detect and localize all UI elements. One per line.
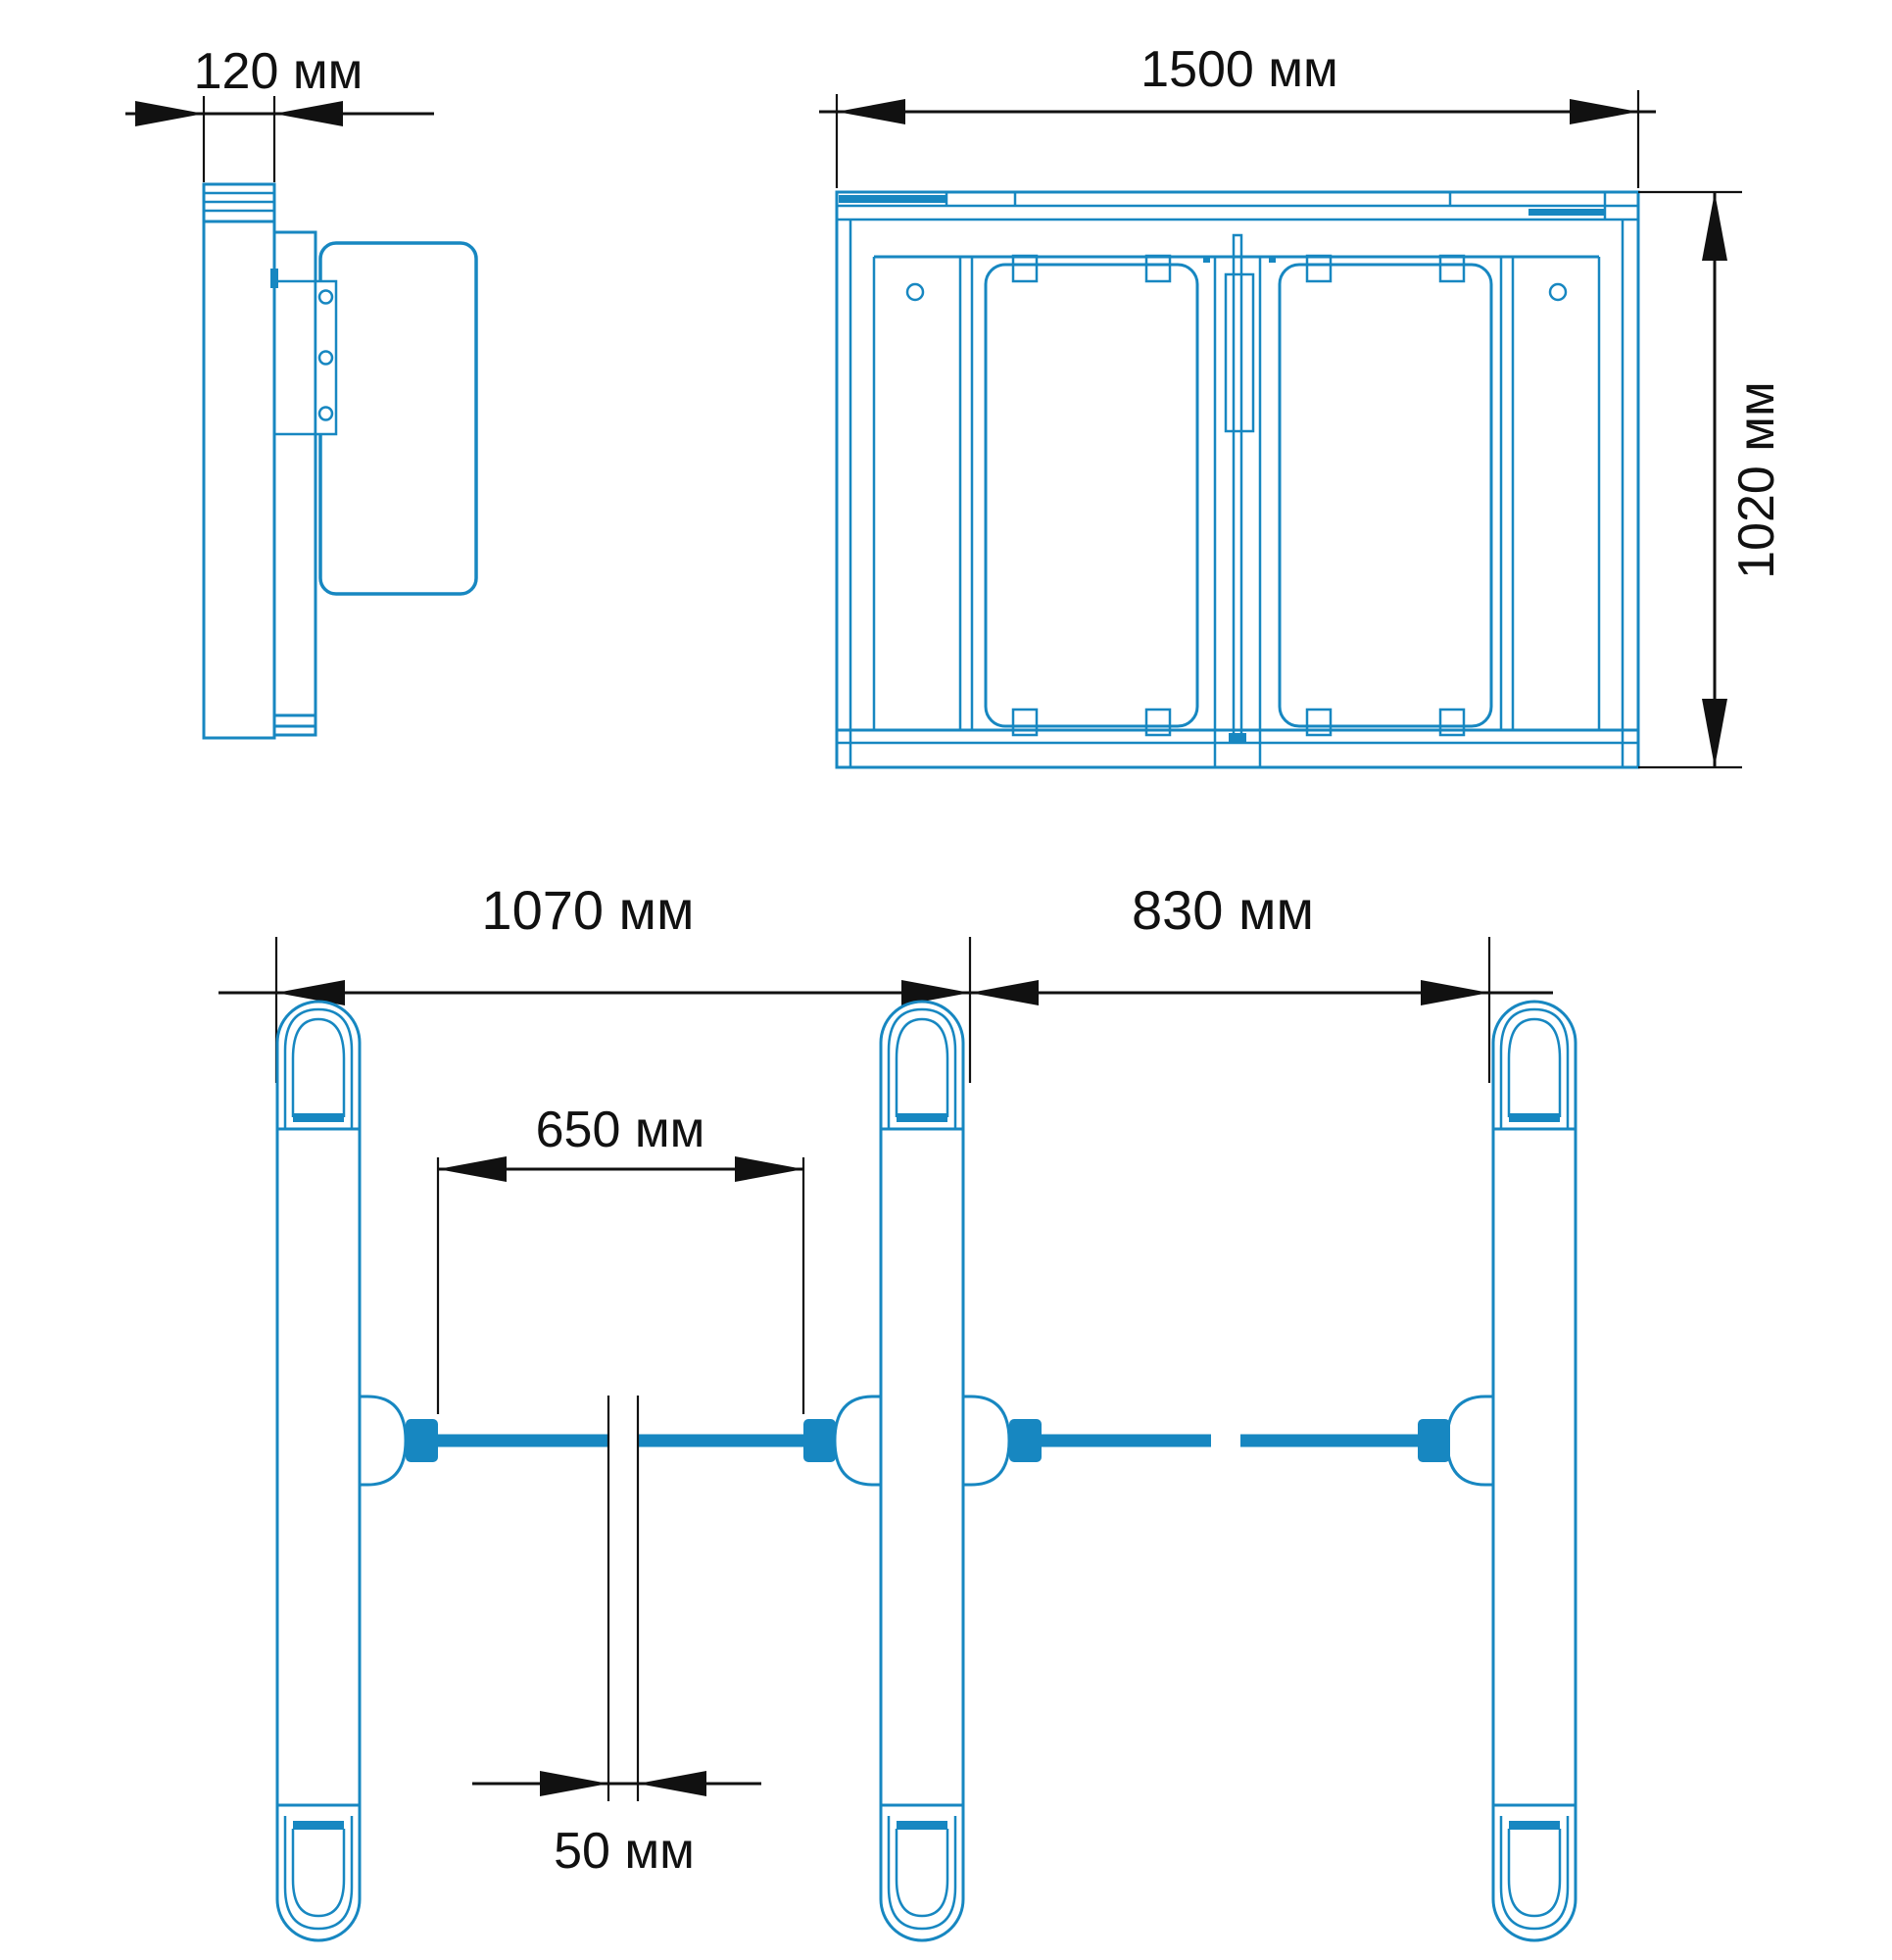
lid-seam-strip	[839, 195, 946, 203]
gate-hub-block	[803, 1419, 836, 1462]
plan-post-middle	[803, 1002, 1042, 1940]
glass-clamp	[1013, 256, 1037, 281]
dimension-label-50: 50 мм	[554, 1823, 695, 1880]
plan-post-right	[1418, 1002, 1576, 1940]
gate-hinge-bump	[835, 1396, 881, 1485]
turnstile-technical-drawing: 120 мм	[0, 0, 1892, 1960]
cap-bar	[293, 1821, 344, 1830]
gate-hub-block	[1009, 1419, 1042, 1462]
arrowhead-up-icon	[1702, 192, 1727, 261]
mounting-hole-icon	[1550, 284, 1566, 300]
cap-bar	[1509, 1113, 1560, 1122]
divider-pin	[1203, 256, 1210, 263]
cap-bar	[1509, 1821, 1560, 1830]
dimension-label-650: 650 мм	[536, 1102, 705, 1158]
dimension-label-1070: 1070 мм	[481, 879, 694, 941]
side-post-body	[204, 221, 274, 738]
arrowhead-left-icon	[638, 1771, 706, 1796]
divider-pin	[1269, 256, 1276, 263]
front-glass-wing-left	[986, 256, 1197, 735]
arrowhead-right-icon	[274, 101, 343, 126]
front-cabinet-outline	[837, 192, 1638, 767]
side-view: 120 мм	[125, 43, 476, 738]
arrowhead-right-icon	[540, 1771, 608, 1796]
dimension-leaf-gap: 50 мм	[472, 1396, 761, 1880]
front-inner-frame	[837, 220, 1638, 767]
dimension-cabinet-length: 1500 мм	[819, 41, 1656, 188]
arrowhead-left-icon	[135, 101, 204, 126]
arrowhead-right-icon	[735, 1156, 803, 1182]
lid-seam-strip	[1528, 209, 1605, 216]
dimension-label-830: 830 мм	[1132, 879, 1314, 941]
arrowhead-left-icon	[970, 980, 1039, 1005]
dimension-cabinet-depth: 120 мм	[125, 43, 434, 182]
arrowhead-right-icon	[1421, 980, 1489, 1005]
gate-hub-block	[406, 1419, 438, 1462]
front-lid	[837, 192, 1638, 220]
dimension-label-1500: 1500 мм	[1140, 41, 1338, 98]
cap-bar	[897, 1821, 947, 1830]
gate-hinge-bump	[1447, 1396, 1493, 1485]
divider-housing	[1226, 274, 1253, 431]
side-hinge-bracket	[315, 281, 336, 434]
plan-post-left	[277, 1002, 438, 1940]
column-notch	[270, 269, 278, 288]
front-glass-wing-right	[1280, 256, 1491, 735]
dimension-cabinet-height: 1020 мм	[1638, 192, 1785, 767]
gate-hinge-bump	[963, 1396, 1009, 1485]
dimension-label-1020: 1020 мм	[1728, 381, 1785, 579]
plan-view: 1070 мм 830 мм 650 мм	[218, 879, 1576, 1940]
dimension-label-120: 120 мм	[194, 43, 364, 100]
blueprint-page: 120 мм	[0, 0, 1892, 1960]
side-rear-column	[270, 232, 315, 735]
glass-clamp	[1307, 256, 1331, 281]
divider-blade	[1234, 235, 1241, 742]
glass-clamp	[1146, 256, 1170, 281]
cap-bar	[293, 1113, 344, 1122]
side-post-cap	[204, 184, 274, 221]
dimension-lane-widths: 1070 мм 830 мм	[218, 879, 1553, 1083]
mounting-hole-icon	[907, 284, 923, 300]
side-swing-panel	[320, 243, 476, 594]
arrowhead-down-icon	[1702, 699, 1727, 767]
cap-bar	[897, 1113, 947, 1122]
gate-hinge-bump	[360, 1396, 406, 1485]
front-view: 1500 мм	[819, 41, 1785, 767]
divider-foot	[1229, 733, 1246, 743]
front-central-divider	[1203, 235, 1276, 767]
glass-clamp	[1440, 256, 1464, 281]
arrowhead-left-icon	[438, 1156, 507, 1182]
arrowhead-right-icon	[1570, 99, 1638, 124]
arrowhead-left-icon	[837, 99, 905, 124]
gate-hub-block	[1418, 1419, 1450, 1462]
dimension-passage-width: 650 мм	[438, 1102, 803, 1414]
